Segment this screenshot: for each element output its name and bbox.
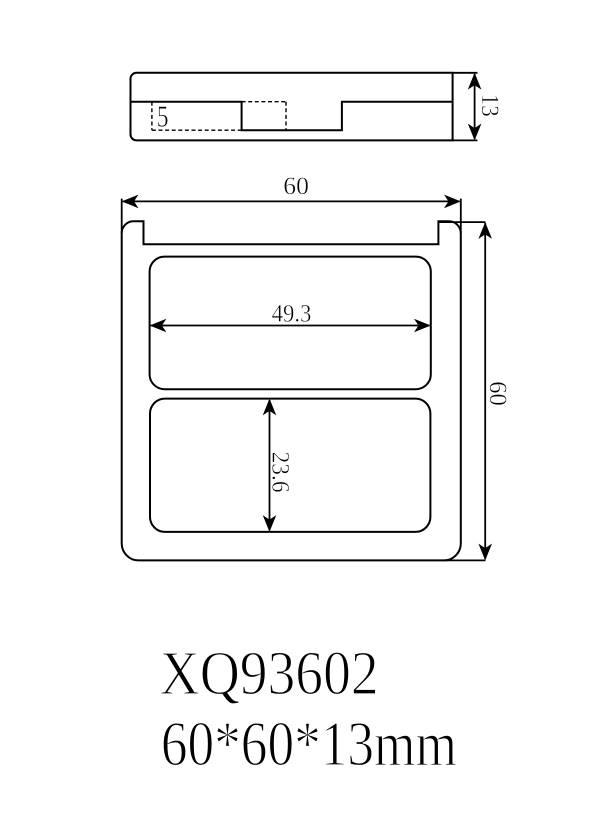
svg-text:60: 60: [484, 381, 511, 406]
svg-text:5: 5: [157, 99, 169, 133]
svg-text:60: 60: [283, 173, 309, 200]
svg-text:23.6: 23.6: [267, 452, 294, 493]
svg-text:49.3: 49.3: [272, 300, 312, 327]
svg-text:60*60*13mm: 60*60*13mm: [161, 709, 457, 779]
svg-text:13: 13: [476, 94, 503, 117]
svg-text:XQ93602: XQ93602: [160, 640, 379, 708]
